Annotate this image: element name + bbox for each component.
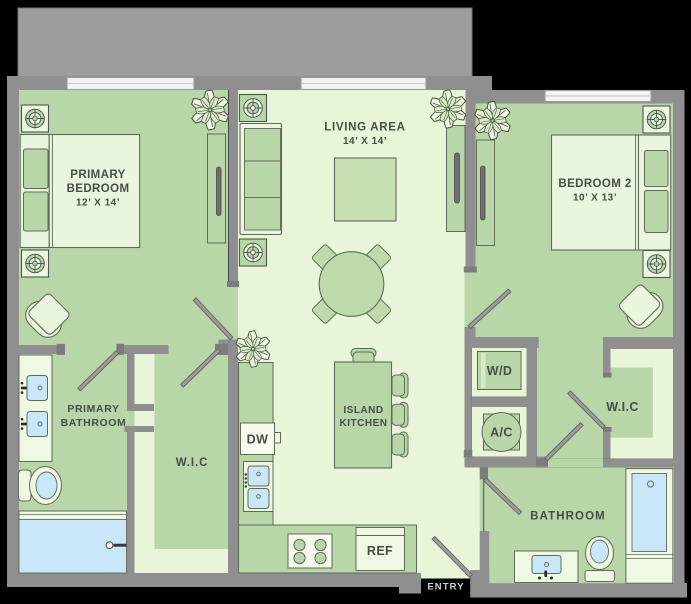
svg-text:14’ X 14’: 14’ X 14’	[343, 136, 387, 147]
svg-text:A/C: A/C	[490, 426, 513, 440]
svg-text:ENTRY: ENTRY	[427, 582, 464, 593]
svg-text:ISLAND: ISLAND	[343, 405, 383, 416]
svg-text:W.I.C: W.I.C	[176, 457, 209, 469]
svg-text:10’ X 13’: 10’ X 13’	[573, 193, 617, 204]
svg-text:LIVING AREA: LIVING AREA	[324, 122, 405, 134]
svg-text:BATHROOM: BATHROOM	[61, 417, 127, 429]
svg-text:DW: DW	[247, 433, 269, 447]
svg-text:W.I.C: W.I.C	[606, 400, 639, 414]
svg-text:BATHROOM: BATHROOM	[530, 511, 606, 523]
svg-text:BEDROOM: BEDROOM	[67, 183, 130, 195]
svg-text:KITCHEN: KITCHEN	[340, 418, 388, 429]
svg-text:PRIMARY: PRIMARY	[70, 169, 125, 181]
svg-text:W/D: W/D	[487, 364, 513, 378]
svg-text:12’ X 14’: 12’ X 14’	[76, 198, 120, 209]
svg-text:REF: REF	[367, 544, 393, 558]
svg-text:PRIMARY: PRIMARY	[67, 403, 119, 415]
svg-text:BEDROOM 2: BEDROOM 2	[558, 178, 631, 190]
